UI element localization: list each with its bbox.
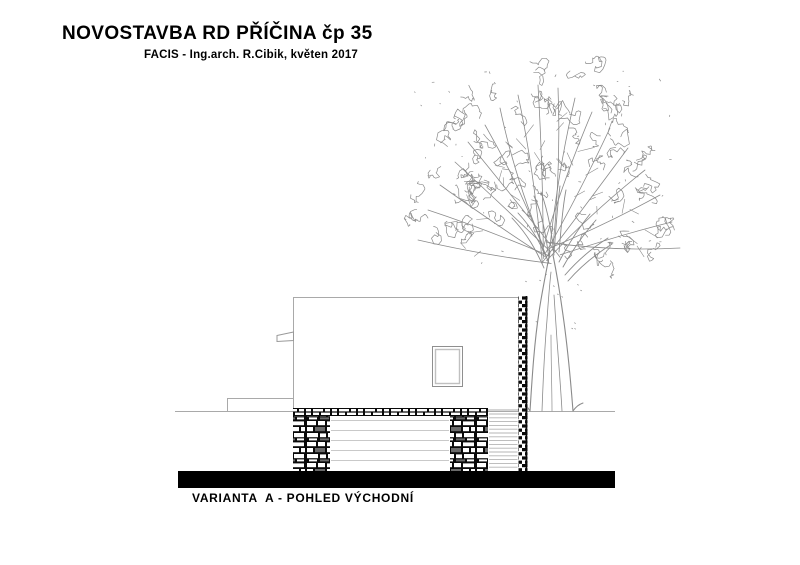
stone-column bbox=[519, 296, 528, 471]
roof-spout bbox=[277, 332, 294, 342]
terrain-step bbox=[228, 399, 294, 412]
masonry-pier-left bbox=[293, 416, 330, 471]
drawing-sheet: NOVOSTAVBA RD PŘÍČINA čp 35 FACIS - Ing.… bbox=[0, 0, 800, 565]
louver-screen bbox=[489, 414, 518, 467]
ground-bar bbox=[178, 471, 615, 488]
garage-door bbox=[330, 415, 450, 471]
masonry-lintel bbox=[293, 408, 488, 416]
masonry-pier-right bbox=[450, 416, 488, 471]
view-caption: VARIANTA A - POHLED VÝCHODNÍ bbox=[192, 491, 414, 505]
elevation-drawing bbox=[0, 0, 800, 565]
house-main-volume bbox=[294, 298, 519, 411]
window bbox=[433, 347, 463, 387]
